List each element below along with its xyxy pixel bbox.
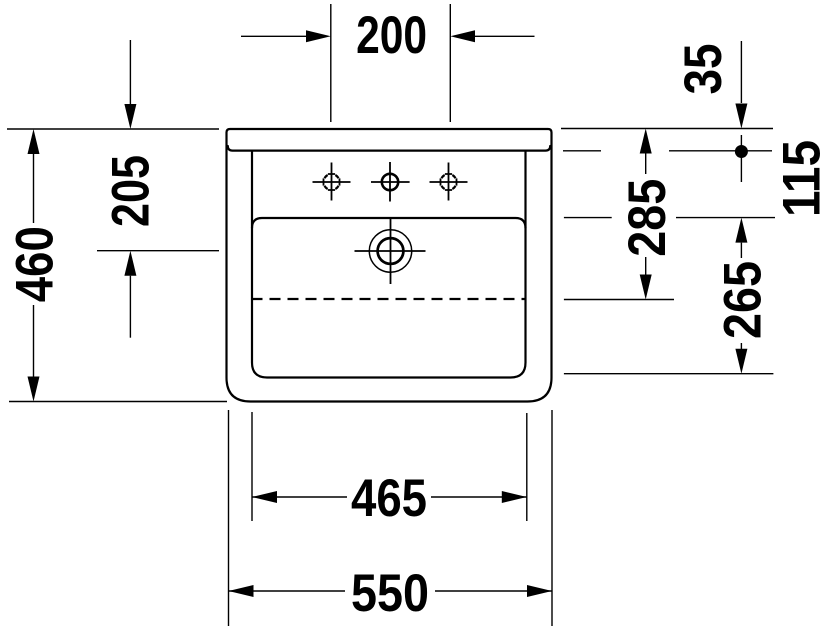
svg-text:115: 115 <box>773 140 832 217</box>
svg-text:205: 205 <box>102 155 161 227</box>
svg-text:265: 265 <box>714 261 773 339</box>
svg-text:460: 460 <box>6 226 65 302</box>
svg-text:285: 285 <box>618 179 677 257</box>
svg-text:200: 200 <box>356 6 427 65</box>
svg-text:550: 550 <box>351 564 429 623</box>
svg-text:465: 465 <box>351 469 427 528</box>
svg-text:35: 35 <box>674 44 733 95</box>
